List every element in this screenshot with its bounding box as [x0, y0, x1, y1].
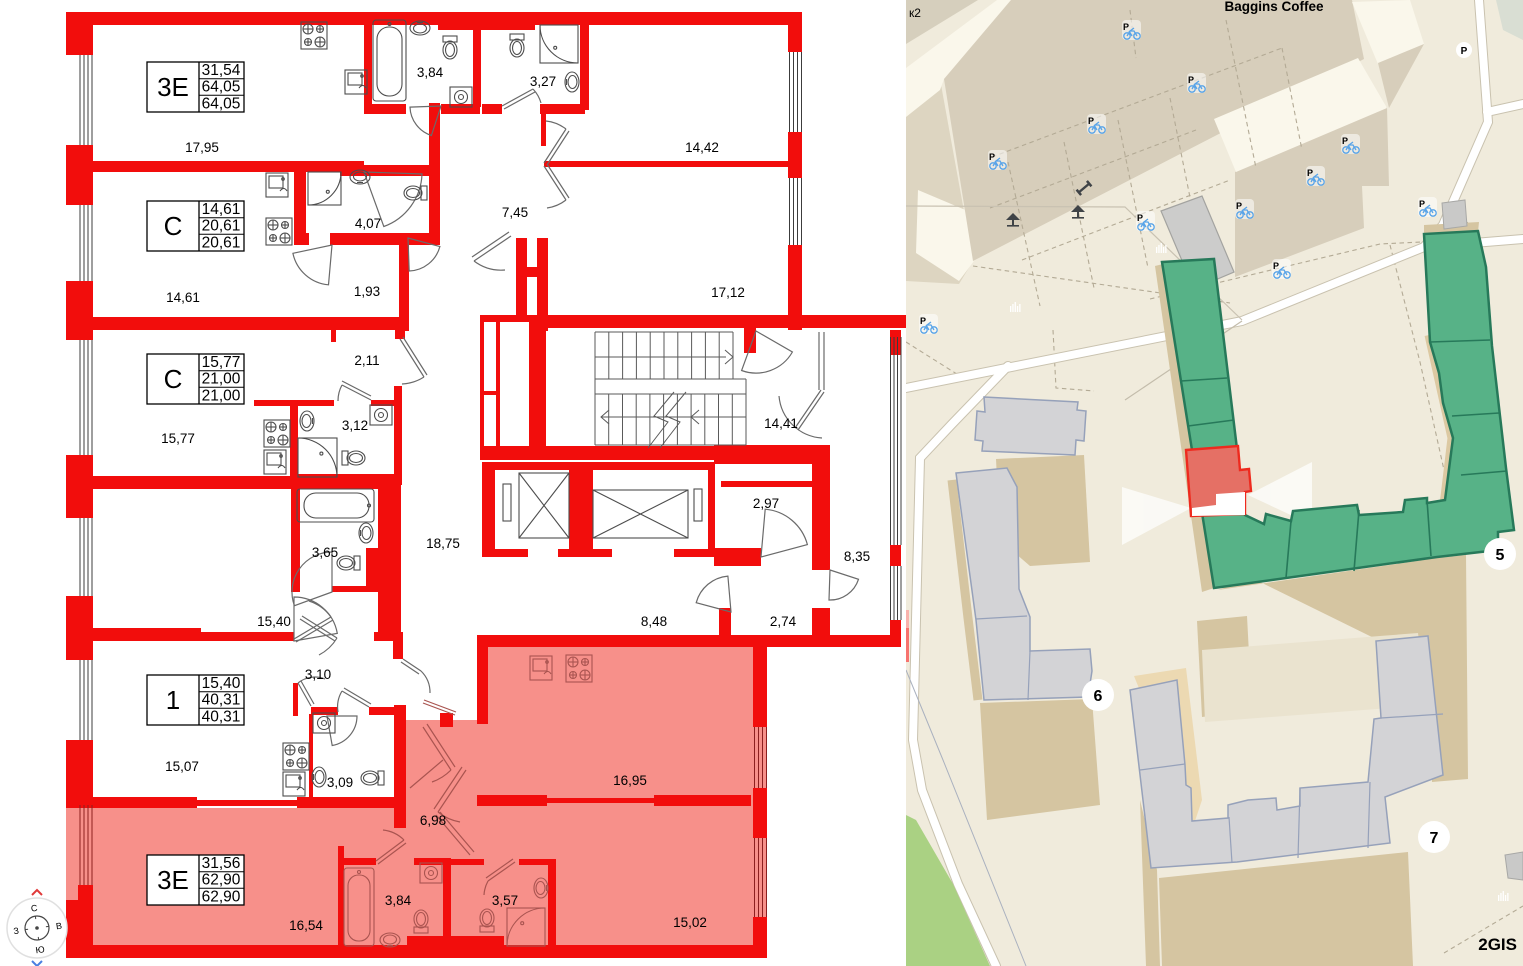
svg-text:к2: к2 [909, 6, 921, 20]
svg-text:3,10: 3,10 [305, 667, 331, 682]
svg-text:P: P [1123, 22, 1129, 32]
svg-text:6: 6 [1094, 688, 1103, 705]
svg-text:P: P [1137, 213, 1143, 223]
svg-text:62,90: 62,90 [202, 872, 241, 889]
svg-text:7,45: 7,45 [502, 205, 528, 220]
svg-text:21,00: 21,00 [202, 371, 241, 388]
svg-text:3,09: 3,09 [327, 775, 353, 790]
svg-text:5: 5 [1496, 547, 1505, 564]
svg-text:3Е: 3Е [157, 865, 189, 895]
svg-text:7: 7 [1430, 830, 1439, 847]
svg-text:8,48: 8,48 [641, 614, 667, 629]
svg-text:64,05: 64,05 [202, 95, 241, 112]
svg-text:16,54: 16,54 [289, 918, 323, 933]
svg-text:40,31: 40,31 [202, 708, 241, 725]
svg-text:15,40: 15,40 [257, 614, 291, 629]
svg-text:2,97: 2,97 [753, 496, 779, 511]
svg-text:14,61: 14,61 [202, 201, 241, 218]
svg-text:31,56: 31,56 [202, 855, 241, 872]
svg-text:14,42: 14,42 [685, 140, 719, 155]
svg-text:3,27: 3,27 [530, 74, 556, 89]
svg-text:17,95: 17,95 [185, 140, 219, 155]
svg-text:P: P [989, 152, 995, 162]
svg-text:14,61: 14,61 [166, 290, 200, 305]
svg-text:15,77: 15,77 [202, 354, 241, 371]
svg-text:15,40: 15,40 [202, 675, 241, 692]
svg-text:20,61: 20,61 [202, 234, 241, 251]
svg-text:P: P [1236, 201, 1242, 211]
svg-text:16,95: 16,95 [613, 773, 647, 788]
svg-text:3,57: 3,57 [492, 893, 518, 908]
svg-text:P: P [920, 316, 926, 326]
svg-text:P: P [1342, 136, 1348, 146]
svg-text:2,11: 2,11 [354, 353, 379, 368]
svg-text:4,07: 4,07 [355, 216, 381, 231]
svg-text:С: С [164, 211, 183, 241]
svg-text:15,77: 15,77 [161, 431, 195, 446]
svg-text:15,02: 15,02 [673, 915, 707, 930]
svg-text:40,31: 40,31 [202, 692, 241, 709]
svg-text:2,74: 2,74 [770, 614, 797, 629]
svg-text:Ю: Ю [35, 944, 45, 955]
svg-text:С: С [164, 364, 183, 394]
svg-text:P: P [1088, 116, 1094, 126]
svg-text:64,05: 64,05 [202, 79, 241, 96]
svg-text:62,90: 62,90 [202, 888, 241, 905]
svg-text:1,93: 1,93 [354, 284, 380, 299]
svg-text:3Е: 3Е [157, 72, 189, 102]
svg-text:3,65: 3,65 [312, 545, 338, 560]
svg-text:14,41: 14,41 [764, 416, 798, 431]
svg-text:1: 1 [166, 685, 180, 715]
svg-text:P: P [1461, 46, 1468, 57]
svg-text:20,61: 20,61 [202, 218, 241, 235]
svg-text:6,98: 6,98 [420, 813, 446, 828]
svg-text:Baggins Coffee: Baggins Coffee [1224, 0, 1324, 14]
svg-text:15,07: 15,07 [165, 759, 199, 774]
svg-text:P: P [1273, 261, 1279, 271]
svg-text:P: P [1307, 168, 1313, 178]
svg-text:3,12: 3,12 [342, 418, 368, 433]
svg-text:P: P [1419, 199, 1425, 209]
svg-text:P: P [1188, 75, 1194, 85]
svg-text:31,54: 31,54 [202, 62, 241, 79]
svg-text:17,12: 17,12 [711, 285, 745, 300]
svg-text:3,84: 3,84 [385, 893, 412, 908]
svg-text:2GIS: 2GIS [1478, 935, 1517, 954]
svg-text:21,00: 21,00 [202, 387, 241, 404]
svg-text:3,84: 3,84 [417, 65, 444, 80]
svg-text:8,35: 8,35 [844, 549, 870, 564]
svg-text:18,75: 18,75 [426, 536, 460, 551]
